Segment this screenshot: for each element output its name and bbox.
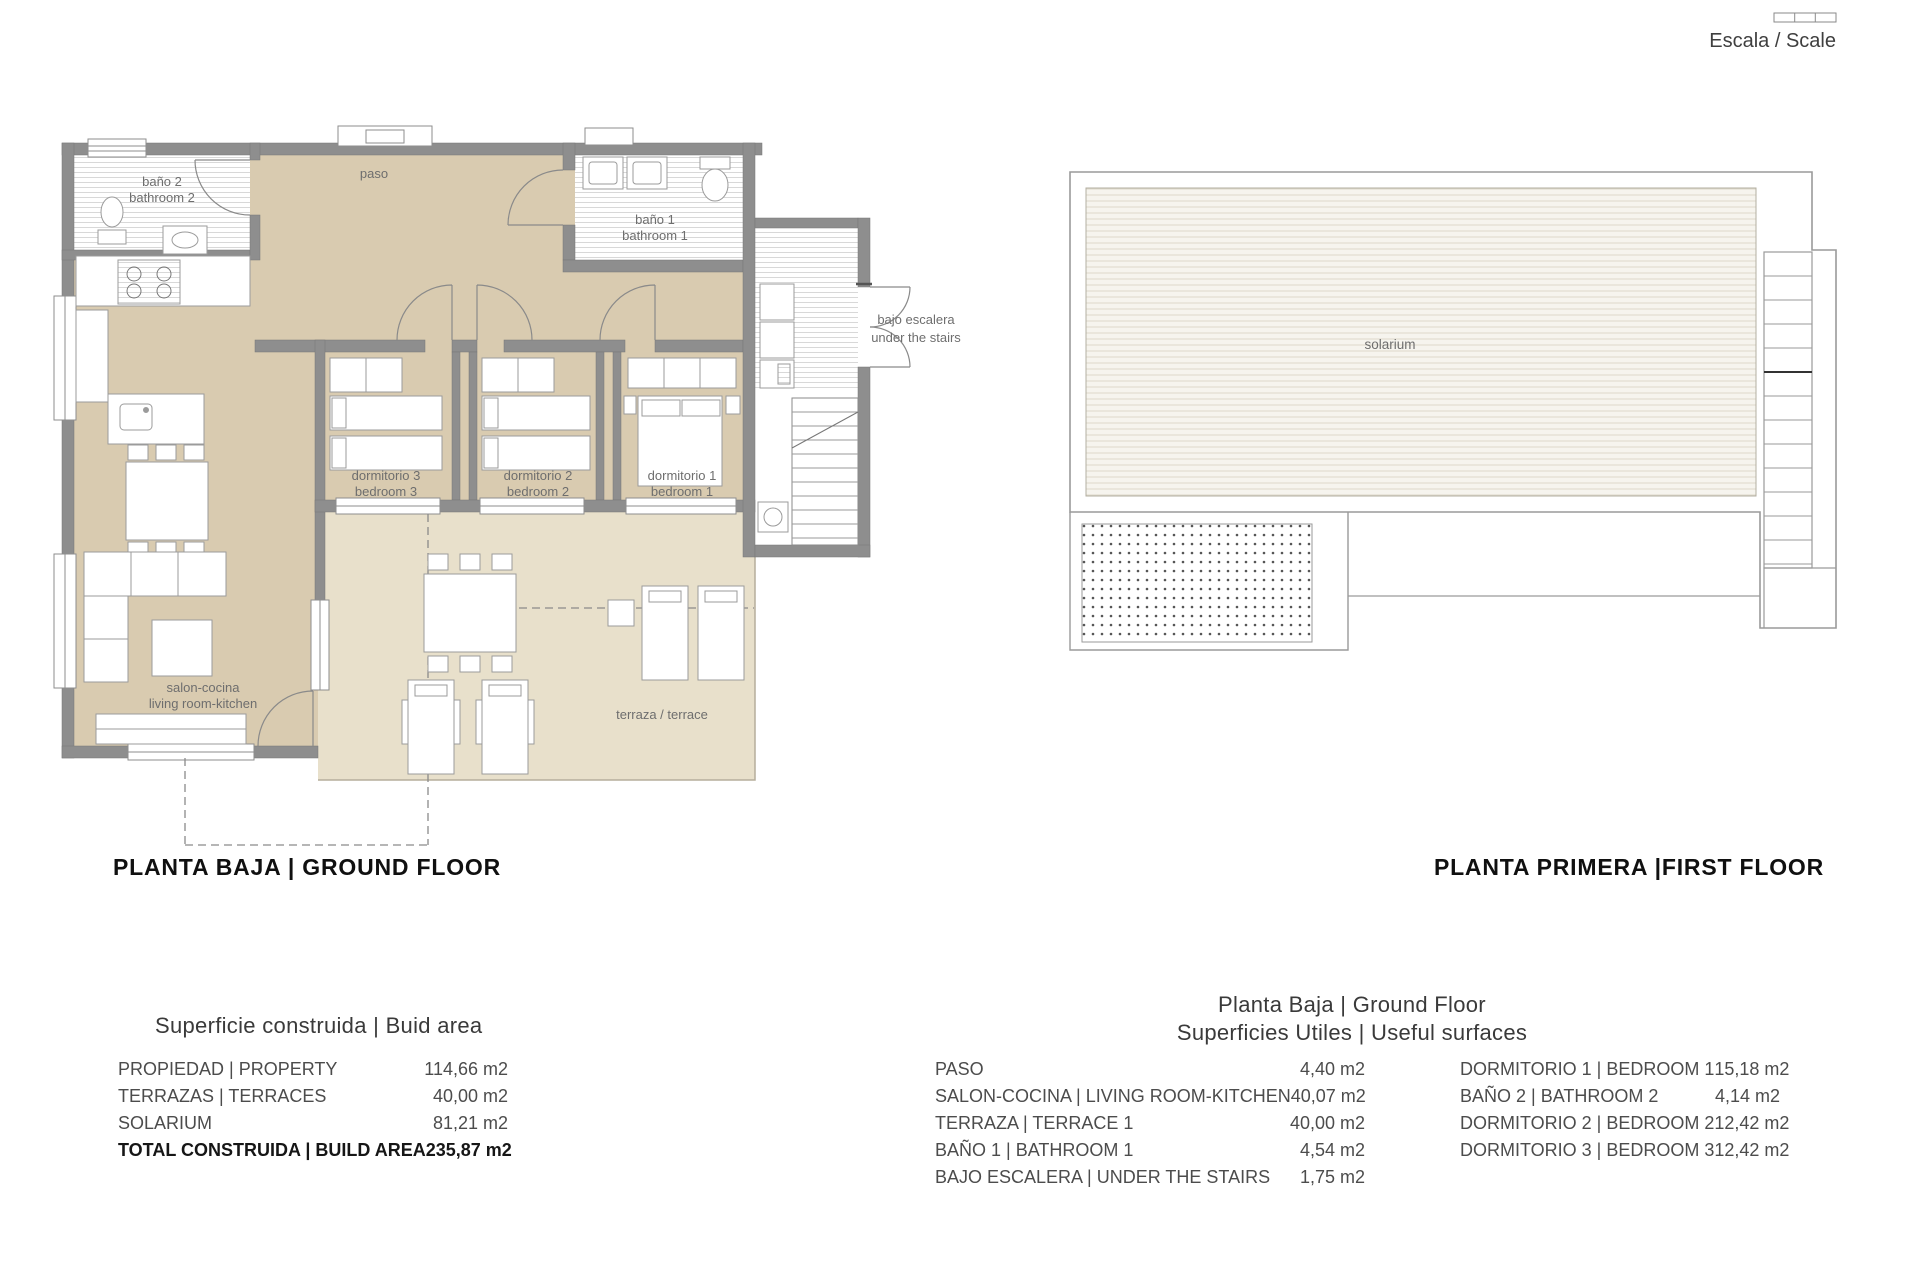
row-label: PROPIEDAD | PROPERTY [118, 1056, 337, 1083]
first-floor-plan: solarium [1070, 172, 1836, 650]
row-label: TERRAZA | TERRACE 1 [935, 1110, 1133, 1137]
useful-surfaces-title-line2: Superficies Utiles | Useful surfaces [1052, 1019, 1652, 1047]
pergola-dotted-area [1082, 524, 1312, 642]
row-value: 40,07 m2 [1291, 1083, 1366, 1110]
ground-stairs [792, 398, 858, 545]
row-value: 40,00 m2 [433, 1083, 508, 1110]
ground-floor-plan: baño 2 bathroom 2 paso baño 1 bathroom 1… [54, 126, 961, 845]
solarium-label: solarium [1364, 337, 1415, 352]
row-label: SALON-COCINA | LIVING ROOM-KITCHEN [935, 1083, 1291, 1110]
row-value: 12,42 m2 [1714, 1137, 1789, 1164]
terrace-floor [318, 512, 755, 780]
scale-label: Escala / Scale [1709, 30, 1836, 52]
row-label: DORMITORIO 3 | BEDROOM 3 [1460, 1137, 1714, 1164]
table-row: DORMITORIO 1 | BEDROOM 1 15,18 m2 [1460, 1056, 1780, 1083]
solarium-deck [1086, 188, 1756, 496]
table-row: DORMITORIO 2 | BEDROOM 2 12,42 m2 [1460, 1110, 1780, 1137]
useful-surfaces-table-title: Planta Baja | Ground Floor Superficies U… [1052, 991, 1652, 1047]
paso-label: paso [360, 166, 388, 181]
table-row: TERRAZAS | TERRACES 40,00 m2 [118, 1083, 508, 1110]
table-row: SALON-COCINA | LIVING ROOM-KITCHEN 40,07… [935, 1083, 1365, 1110]
row-value: 40,00 m2 [1290, 1110, 1365, 1137]
table-row: BAÑO 2 | BATHROOM 2 4,14 m2 [1460, 1083, 1780, 1110]
salon-label-en: living room-kitchen [149, 696, 257, 711]
row-label: DORMITORIO 1 | BEDROOM 1 [1460, 1056, 1714, 1083]
scale-bar: Escala / Scale [1709, 13, 1836, 52]
salon-label-es: salon-cocina [167, 680, 241, 695]
row-label: TOTAL CONSTRUIDA | BUILD AREA [118, 1137, 426, 1164]
row-value: 15,18 m2 [1714, 1056, 1789, 1083]
row-value: 114,66 m2 [424, 1056, 508, 1083]
row-value: 4,40 m2 [1300, 1056, 1365, 1083]
sun-lounger [476, 680, 534, 774]
row-label: SOLARIUM [118, 1110, 212, 1137]
row-label: BAJO ESCALERA | UNDER THE STAIRS [935, 1164, 1270, 1191]
table-row: DORMITORIO 3 | BEDROOM 3 12,42 m2 [1460, 1137, 1780, 1164]
useful-surfaces-title-line1: Planta Baja | Ground Floor [1052, 991, 1652, 1019]
table-row: TERRAZA | TERRACE 1 40,00 m2 [935, 1110, 1365, 1137]
sun-lounger [698, 586, 744, 680]
table-row: BAJO ESCALERA | UNDER THE STAIRS 1,75 m2 [935, 1164, 1365, 1191]
row-value: 235,87 m2 [426, 1137, 512, 1164]
under-stairs-label-en: under the stairs [871, 330, 961, 345]
useful-surfaces-right-column: DORMITORIO 1 | BEDROOM 1 15,18 m2 BAÑO 2… [1460, 1056, 1780, 1164]
useful-surfaces-left-column: PASO 4,40 m2 SALON-COCINA | LIVING ROOM-… [935, 1056, 1365, 1191]
row-value: 4,54 m2 [1300, 1137, 1365, 1164]
table-row: PASO 4,40 m2 [935, 1056, 1365, 1083]
table-row-total: TOTAL CONSTRUIDA | BUILD AREA 235,87 m2 [118, 1137, 508, 1164]
sun-lounger [402, 680, 460, 774]
bedroom1-label-en: bedroom 1 [651, 484, 713, 499]
under-stairs-label-es: bajo escalera [877, 312, 955, 327]
row-label: PASO [935, 1056, 984, 1083]
bathroom2-label-es: baño 2 [142, 174, 182, 189]
bathroom1-label-en: bathroom 1 [622, 228, 688, 243]
ground-floor-title: PLANTA BAJA | GROUND FLOOR [113, 854, 501, 881]
row-value: 12,42 m2 [1714, 1110, 1789, 1137]
row-value: 1,75 m2 [1300, 1164, 1365, 1191]
row-value: 81,21 m2 [433, 1110, 508, 1137]
table-row: SOLARIUM 81,21 m2 [118, 1110, 508, 1137]
row-value: 4,14 m2 [1715, 1083, 1780, 1110]
build-area-table-title: Superficie construida | Buid area [155, 1013, 482, 1039]
terrace-label: terraza / terrace [616, 707, 708, 722]
build-area-table: PROPIEDAD | PROPERTY 114,66 m2 TERRAZAS … [118, 1056, 508, 1164]
floor-plans-canvas: Escala / Scale [0, 0, 1920, 900]
row-label: TERRAZAS | TERRACES [118, 1083, 326, 1110]
table-row: BAÑO 1 | BATHROOM 1 4,54 m2 [935, 1137, 1365, 1164]
bedroom2-label-es: dormitorio 2 [504, 468, 573, 483]
bathroom2-label-en: bathroom 2 [129, 190, 195, 205]
row-label: DORMITORIO 2 | BEDROOM 2 [1460, 1110, 1714, 1137]
bedroom3-label-es: dormitorio 3 [352, 468, 421, 483]
bedroom2-label-en: bedroom 2 [507, 484, 569, 499]
sun-lounger [642, 586, 688, 680]
bedroom3-label-en: bedroom 3 [355, 484, 417, 499]
bathroom1-label-es: baño 1 [635, 212, 675, 227]
first-floor-title: PLANTA PRIMERA |FIRST FLOOR [1434, 854, 1824, 881]
bedroom1-label-es: dormitorio 1 [648, 468, 717, 483]
table-row: PROPIEDAD | PROPERTY 114,66 m2 [118, 1056, 508, 1083]
row-label: BAÑO 2 | BATHROOM 2 [1460, 1083, 1658, 1110]
row-label: BAÑO 1 | BATHROOM 1 [935, 1137, 1133, 1164]
